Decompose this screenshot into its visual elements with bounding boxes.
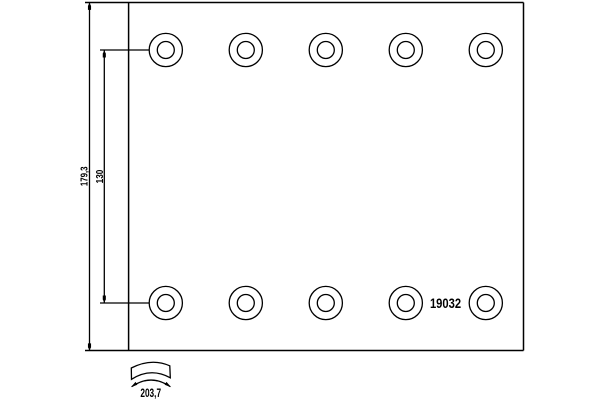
svg-text:130: 130	[94, 170, 105, 184]
svg-text:203,7: 203,7	[140, 388, 161, 400]
svg-text:179,3: 179,3	[78, 166, 89, 186]
svg-text:19032: 19032	[430, 296, 461, 311]
